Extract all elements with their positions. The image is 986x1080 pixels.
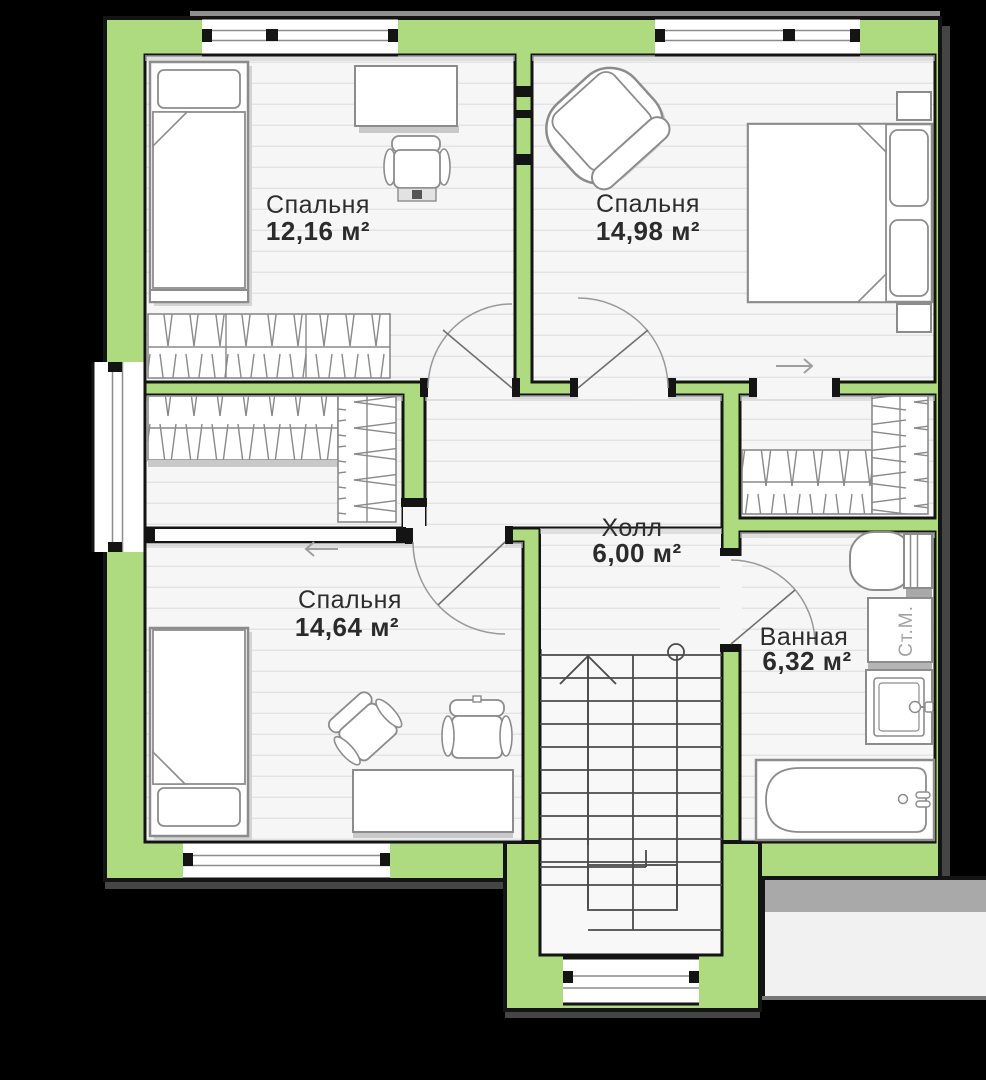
desk-icon: [355, 66, 459, 133]
floor-plan-canvas: Ст.М. Спальня 12,16 м²: [0, 0, 986, 1080]
floor-plan-page: Ст.М. Спальня 12,16 м²: [0, 0, 986, 1080]
room-label-bedroom-bottom-left: Спальня 14,64 м²: [295, 586, 402, 642]
washing-machine-label: Ст.М.: [896, 605, 917, 657]
room-label-bedroom-top-left: Спальня 12,16 м²: [266, 191, 370, 246]
room-name: Спальня: [266, 191, 370, 219]
room-name: Спальня: [298, 586, 402, 614]
washing-machine-icon: Ст.М.: [868, 598, 932, 670]
room-name: Спальня: [596, 190, 700, 218]
floor-hall: [425, 395, 722, 528]
double-bed-icon: [748, 124, 932, 302]
lower-roof-area: [762, 876, 986, 1000]
room-label-bedroom-top-right: Спальня 14,98 м²: [596, 190, 700, 246]
toilet-icon: [850, 532, 932, 598]
single-bed-icon: [150, 62, 252, 306]
room-area: 6,32 м²: [762, 646, 851, 676]
nightstand-icon: [897, 92, 931, 120]
office-chair-icon: [442, 696, 512, 758]
sink-icon: [866, 670, 933, 744]
window-stairwell: [563, 958, 699, 1004]
room-area: 6,00 м²: [592, 538, 681, 568]
window-left: [93, 362, 145, 552]
partition-wall-white: [146, 527, 405, 543]
window-top-left: [202, 18, 398, 55]
room-area: 12,16 м²: [266, 216, 370, 246]
room-label-bathroom: Ванная 6,32 м²: [760, 623, 852, 676]
desk-icon: [353, 770, 513, 838]
single-bed-icon: [150, 628, 252, 840]
window-bottom: [183, 842, 390, 879]
bathtub-icon: [756, 760, 934, 840]
room-area: 14,98 м²: [596, 216, 700, 246]
window-top-right: [655, 18, 860, 55]
room-area: 14,64 м²: [295, 612, 399, 642]
wardrobe-icon: [148, 314, 390, 378]
nightstand-icon: [897, 304, 931, 332]
